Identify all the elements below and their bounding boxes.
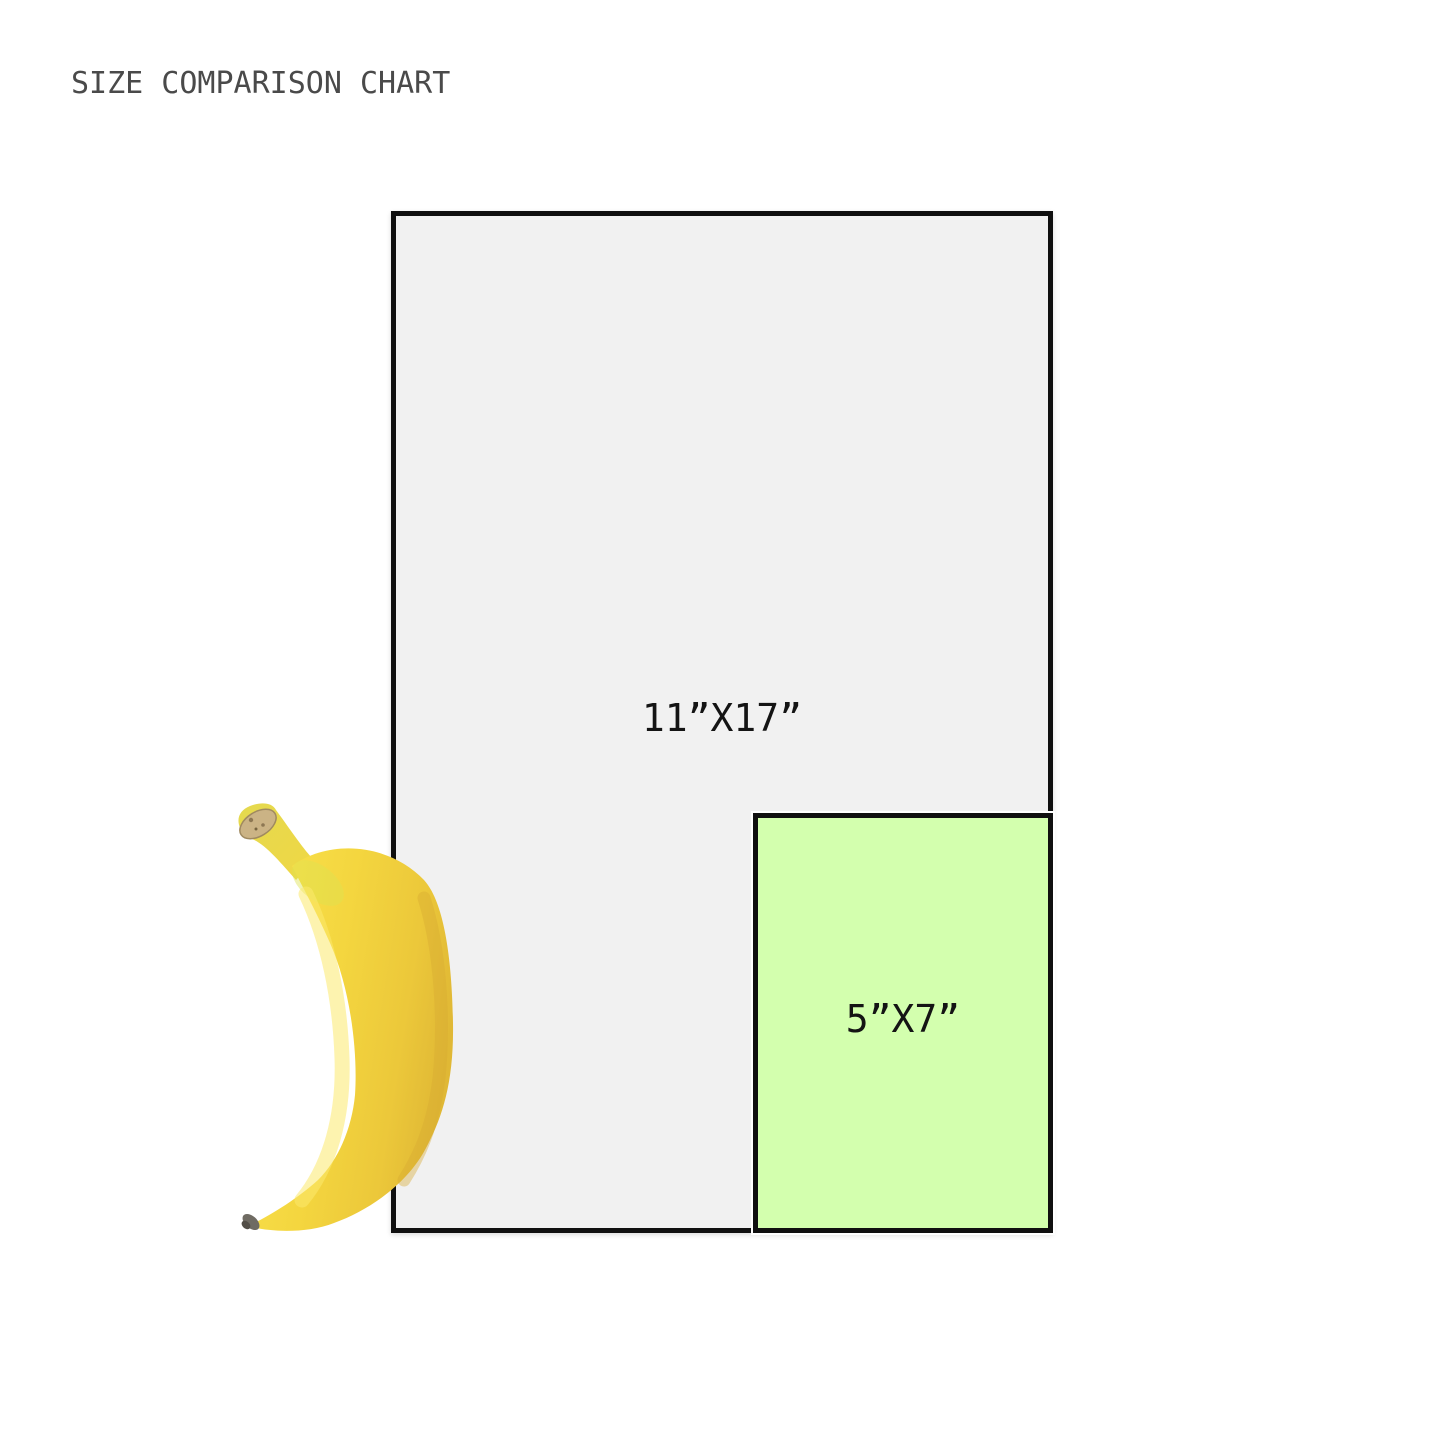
size-label-11x17: 11”X17” [642,696,802,740]
page-title: SIZE COMPARISON CHART [71,66,450,101]
size-label-5x7: 5”X7” [846,997,960,1041]
size-rect-5x7: 5”X7” [753,813,1053,1233]
